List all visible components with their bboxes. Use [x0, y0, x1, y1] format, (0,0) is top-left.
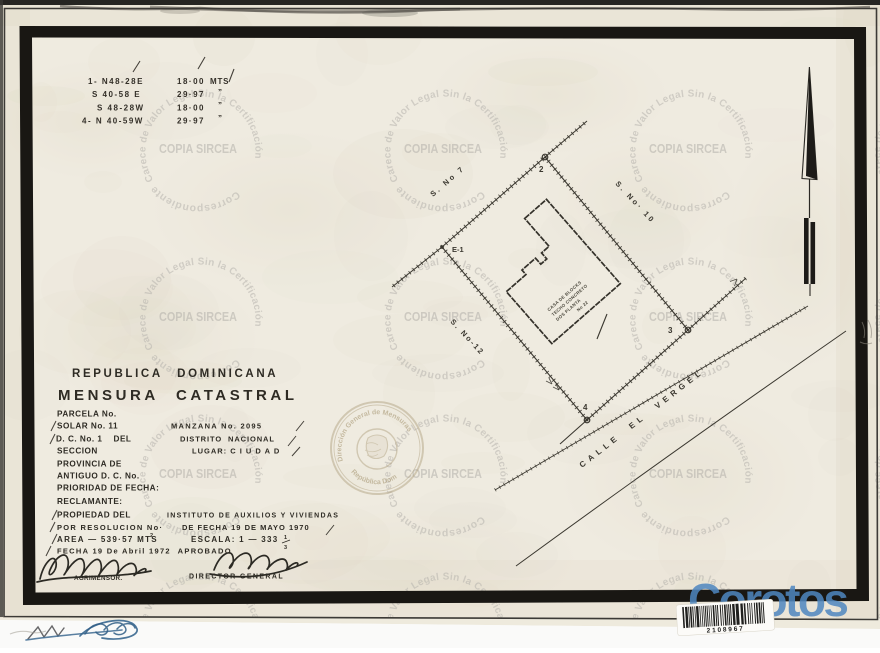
svg-text:ESCALA: 1 — 333: ESCALA: 1 — 333 — [191, 535, 279, 544]
svg-text:”: ” — [218, 88, 224, 97]
svg-text:”: ” — [218, 114, 224, 123]
svg-text:1: 1 — [284, 535, 287, 541]
svg-text:S 40-58 E: S 40-58 E — [92, 90, 141, 99]
svg-text:29·97: 29·97 — [177, 90, 205, 99]
svg-text:FECHA 19 De Abril 1972 APROBA: FECHA 19 De Abril 1972 APROBADO — [57, 547, 232, 556]
svg-text:4- N 40-59W: 4- N 40-59W — [82, 117, 144, 126]
svg-text:SOLAR No. 11: SOLAR No. 11 — [57, 422, 118, 431]
svg-text:S 48-28W: S 48-28W — [97, 104, 145, 113]
svg-text:AREA — 539·57 MTS: AREA — 539·57 MTS — [57, 535, 158, 544]
svg-text:DE FECHA 19 DE MAYO 1970: DE FECHA 19 DE MAYO 1970 — [182, 523, 310, 532]
svg-text:1- N48-28E: 1- N48-28E — [88, 77, 144, 86]
svg-text:MANZANA No. 2095: MANZANA No. 2095 — [171, 422, 262, 431]
svg-text:PARCELA No.: PARCELA No. — [57, 410, 117, 419]
svg-text:29·97: 29·97 — [177, 117, 205, 126]
svg-text:2: 2 — [150, 533, 154, 539]
svg-text:ANTIGUO D. C. No.: ANTIGUO D. C. No. — [57, 472, 140, 481]
svg-text:3: 3 — [284, 545, 287, 551]
svg-text:MENSURA CATASTRAL: MENSURA CATASTRAL — [58, 387, 297, 404]
svg-text:DISTRITO NACIONAL: DISTRITO NACIONAL — [180, 435, 275, 444]
svg-text:E-1: E-1 — [452, 245, 464, 254]
svg-text:RECLAMANTE:: RECLAMANTE: — [57, 497, 123, 506]
svg-text:INSTITUTO DE AUXILIOS Y VI: INSTITUTO DE AUXILIOS Y VIVIENDAS — [167, 513, 339, 520]
svg-text:SECCION: SECCION — [57, 447, 98, 456]
svg-text:D. C. No. 1 DEL: D. C. No. 1 DEL — [56, 435, 131, 444]
svg-text:POR RESOLUCION No·: POR RESOLUCION No· — [57, 523, 163, 532]
svg-text:LUGAR: C I U D A D: LUGAR: C I U D A D — [192, 447, 280, 456]
svg-text:2: 2 — [539, 165, 544, 174]
svg-text:3: 3 — [668, 326, 673, 335]
svg-text:PROVINCIA DE: PROVINCIA DE — [57, 460, 122, 469]
svg-text:4: 4 — [583, 403, 588, 412]
svg-text:PROPIEDAD DEL: PROPIEDAD DEL — [57, 511, 131, 520]
svg-text:REPUBLICA DOMINICANA: REPUBLICA DOMINICANA — [72, 368, 278, 380]
svg-text:PRIORIDAD DE FECHA:: PRIORIDAD DE FECHA: — [57, 484, 159, 493]
svg-text:MTS: MTS — [210, 77, 229, 86]
svg-text:18·00: 18·00 — [177, 77, 205, 86]
svg-text:18·00: 18·00 — [177, 104, 205, 113]
svg-text:”: ” — [218, 101, 224, 110]
